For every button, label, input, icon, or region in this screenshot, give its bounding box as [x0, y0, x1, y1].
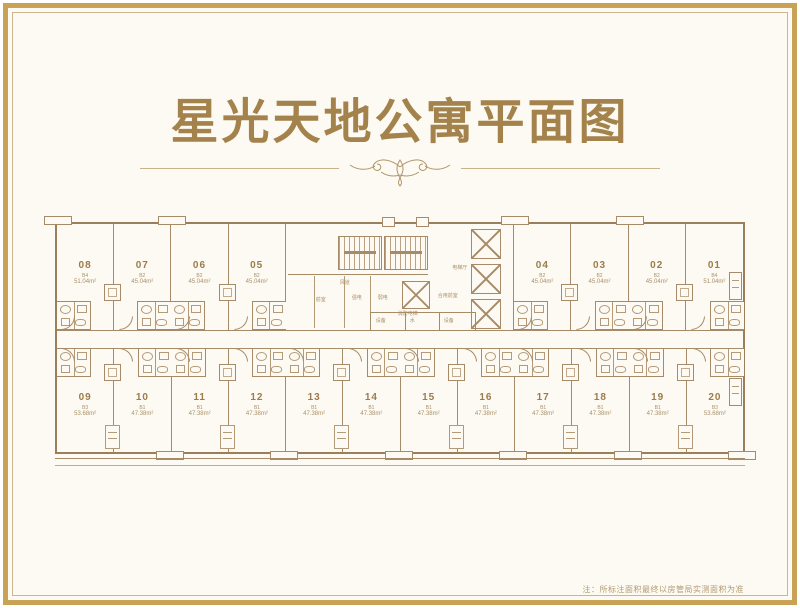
apartment-unit: 11 B1 47.38m²: [172, 348, 229, 452]
entry-door-arc: [576, 316, 590, 330]
unit-number: 01: [686, 260, 743, 273]
kitchen-fixture: [220, 425, 235, 449]
unit-area: 47.38m²: [572, 411, 628, 419]
fire-elevator-shaft: [402, 281, 430, 309]
top-left-units: 08 B4 51.04m²: [57, 224, 286, 330]
bathroom-block: [596, 348, 630, 377]
unit-label: 04 B2 45.04m²: [514, 260, 570, 286]
bathroom-block: [138, 348, 172, 377]
room-label-elevator-hall: 电梯厅: [452, 264, 467, 271]
core-wall: [288, 274, 428, 275]
bathroom-block: [710, 348, 744, 377]
plumbing-shaft: [562, 364, 579, 381]
bathroom-block: [137, 301, 171, 330]
unit-number: 03: [571, 260, 627, 273]
apartment-unit: 14 B1 47.38m²: [343, 348, 400, 452]
plumbing-shaft: [333, 364, 350, 381]
room-label-fire-elevator: 消防电梯: [398, 310, 418, 317]
vent-shaft: [382, 217, 395, 227]
balcony-box: [616, 216, 644, 225]
unit-label: 16 B1 47.38m²: [458, 392, 514, 418]
unit-label: 18 B1 47.38m²: [572, 392, 628, 418]
unit-area: 47.38m²: [401, 411, 457, 419]
site-line: [55, 458, 745, 459]
plumbing-shaft: [676, 284, 693, 301]
unit-label: 12 B1 47.38m²: [229, 392, 285, 418]
kitchen-fixture: [563, 425, 578, 449]
unit-area: 47.38m²: [458, 411, 514, 419]
plumbing-shaft: [561, 284, 578, 301]
entry-door-arc: [692, 348, 706, 362]
flourish-ornament-icon: [345, 154, 455, 188]
page-title: 星光天地公寓平面图: [0, 82, 800, 152]
floorplan-poster: 星光天地公寓平面图: [0, 0, 800, 608]
ornament-line-left: [140, 168, 339, 169]
entry-door-arc: [119, 316, 133, 330]
room-label-strong-elec: 强电: [352, 294, 362, 301]
unit-number: 10: [114, 392, 170, 405]
unit-label: 06 B2 45.04m²: [171, 260, 227, 286]
room-label-air-duct: 风道: [340, 279, 350, 286]
plumbing-shaft: [448, 364, 465, 381]
unit-number: 11: [172, 392, 228, 405]
unit-label: 14 B1 47.38m²: [343, 392, 399, 418]
staircase-west: [338, 236, 382, 270]
unit-number: 09: [57, 392, 113, 405]
staircase-east: [384, 236, 428, 270]
unit-label: 08 B4 51.04m²: [57, 260, 113, 286]
unit-area: 47.38m²: [172, 411, 228, 419]
apartment-unit: 02 B2 45.04m²: [629, 224, 686, 330]
unit-number: 08: [57, 260, 113, 273]
disclaimer-note: 注：所标注面积最终以房管局实测面积为准: [583, 584, 745, 595]
elevator-shaft: [471, 299, 501, 329]
central-corridor: [57, 330, 743, 349]
unit-area: 47.38m²: [229, 411, 285, 419]
apartment-unit: 13 B1 47.38m²: [286, 348, 343, 452]
kitchen-fixture: [449, 425, 464, 449]
room-label-front-room: 前室: [316, 296, 326, 303]
apartment-unit: 03 B2 45.04m²: [571, 224, 628, 330]
title-ornament-row: [140, 154, 660, 188]
kitchen-fixture: [678, 425, 693, 449]
unit-area: 51.04m²: [686, 279, 743, 287]
unit-number: 02: [629, 260, 685, 273]
top-right-units: 04 B2 45.04m²: [514, 224, 743, 330]
apartment-unit: 12 B1 47.38m²: [229, 348, 286, 452]
unit-number: 12: [229, 392, 285, 405]
end-wall-fixture: [729, 378, 742, 406]
unit-label: 19 B1 47.38m²: [630, 392, 686, 418]
elevator-shaft: [471, 264, 501, 294]
ornament-line-right: [461, 168, 660, 169]
unit-label: 02 B2 45.04m²: [629, 260, 685, 286]
room-label-weak-elec: 弱电: [378, 294, 388, 301]
balcony-box: [501, 216, 529, 225]
bottom-unit-row: 09 B3 53.68m² 10: [57, 348, 743, 452]
room-label-equipment: 设备: [376, 317, 386, 324]
unit-label: 09 B3 53.68m²: [57, 392, 113, 418]
apartment-unit: 19 B1 47.38m²: [630, 348, 687, 452]
unit-number: 06: [171, 260, 227, 273]
unit-area: 53.68m²: [687, 411, 743, 419]
unit-number: 15: [401, 392, 457, 405]
room-label-equipment: 设备: [444, 317, 454, 324]
unit-label: 10 B1 47.38m²: [114, 392, 170, 418]
balcony-box: [44, 216, 72, 225]
apartment-unit: 08 B4 51.04m²: [57, 224, 114, 330]
unit-label: 13 B1 47.38m²: [286, 392, 342, 418]
apartment-unit: 06 B2 45.04m²: [171, 224, 228, 330]
bathroom-block: [252, 348, 286, 377]
unit-label: 01 B4 51.04m²: [686, 260, 743, 286]
unit-number: 17: [515, 392, 571, 405]
unit-label: 11 B1 47.38m²: [172, 392, 228, 418]
unit-number: 07: [114, 260, 170, 273]
kitchen-fixture: [105, 425, 120, 449]
bathroom-block: [367, 348, 401, 377]
plumbing-shaft: [104, 364, 121, 381]
bathroom-block: [252, 301, 286, 330]
apartment-unit: 09 B3 53.68m²: [57, 348, 114, 452]
site-line: [55, 465, 745, 466]
unit-label: 05 B2 45.04m²: [229, 260, 285, 286]
apartment-unit: 01 B4 51.04m²: [686, 224, 743, 330]
elevator-shaft: [471, 229, 501, 259]
unit-number: 05: [229, 260, 285, 273]
unit-area: 45.04m²: [114, 279, 170, 287]
bathroom-block: [710, 301, 744, 330]
apartment-unit: 16 B1 47.38m²: [458, 348, 515, 452]
unit-area: 45.04m²: [229, 279, 285, 287]
unit-label: 17 B1 47.38m²: [515, 392, 571, 418]
apartment-unit: 17 B1 47.38m²: [515, 348, 572, 452]
kitchen-fixture: [334, 425, 349, 449]
unit-area: 47.38m²: [286, 411, 342, 419]
unit-area: 53.68m²: [57, 411, 113, 419]
unit-label: 03 B2 45.04m²: [571, 260, 627, 286]
unit-number: 19: [630, 392, 686, 405]
unit-number: 16: [458, 392, 514, 405]
central-core: 前室 风道 强电 弱电 消防电梯 合用前室 电梯厅 设备 水 设备: [286, 224, 515, 330]
unit-label: 15 B1 47.38m²: [401, 392, 457, 418]
entry-door-arc: [119, 348, 133, 362]
building-floorplan: 08 B4 51.04m²: [55, 222, 745, 478]
apartment-unit: 04 B2 45.04m²: [514, 224, 571, 330]
plumbing-shaft: [219, 284, 236, 301]
entry-door-arc: [577, 348, 591, 362]
unit-area: 47.38m²: [343, 411, 399, 419]
entry-door-arc: [234, 348, 248, 362]
apartment-unit: 20 B3 53.68m²: [687, 348, 743, 452]
room-label-shared-front-room: 合用前室: [438, 292, 458, 299]
entry-door-arc: [348, 348, 362, 362]
unit-number: 13: [286, 392, 342, 405]
unit-area: 47.38m²: [515, 411, 571, 419]
entry-door-arc: [463, 348, 477, 362]
unit-number: 18: [572, 392, 628, 405]
room-label-water: 水: [410, 317, 415, 324]
apartment-unit: 10 B1 47.38m²: [114, 348, 171, 452]
unit-area: 47.38m²: [114, 411, 170, 419]
apartment-unit: 15 B1 47.38m²: [401, 348, 458, 452]
bathroom-block: [595, 301, 629, 330]
apartment-unit: 07 B2 45.04m²: [114, 224, 171, 330]
unit-label: 07 B2 45.04m²: [114, 260, 170, 286]
balcony-box: [158, 216, 186, 225]
unit-area: 45.04m²: [571, 279, 627, 287]
core-wall: [314, 276, 315, 328]
apartment-unit: 18 B1 47.38m²: [572, 348, 629, 452]
top-unit-row: 08 B4 51.04m²: [57, 224, 743, 330]
plumbing-shaft: [219, 364, 236, 381]
bathroom-block: [481, 348, 515, 377]
unit-number: 04: [514, 260, 570, 273]
elevator-bank: [471, 229, 499, 334]
entry-door-arc: [234, 316, 248, 330]
vent-shaft: [416, 217, 429, 227]
apartment-unit: 05 B2 45.04m²: [229, 224, 286, 330]
unit-area: 47.38m²: [630, 411, 686, 419]
unit-number: 14: [343, 392, 399, 405]
entry-door-arc: [691, 316, 705, 330]
plumbing-shaft: [677, 364, 694, 381]
plumbing-shaft: [104, 284, 121, 301]
